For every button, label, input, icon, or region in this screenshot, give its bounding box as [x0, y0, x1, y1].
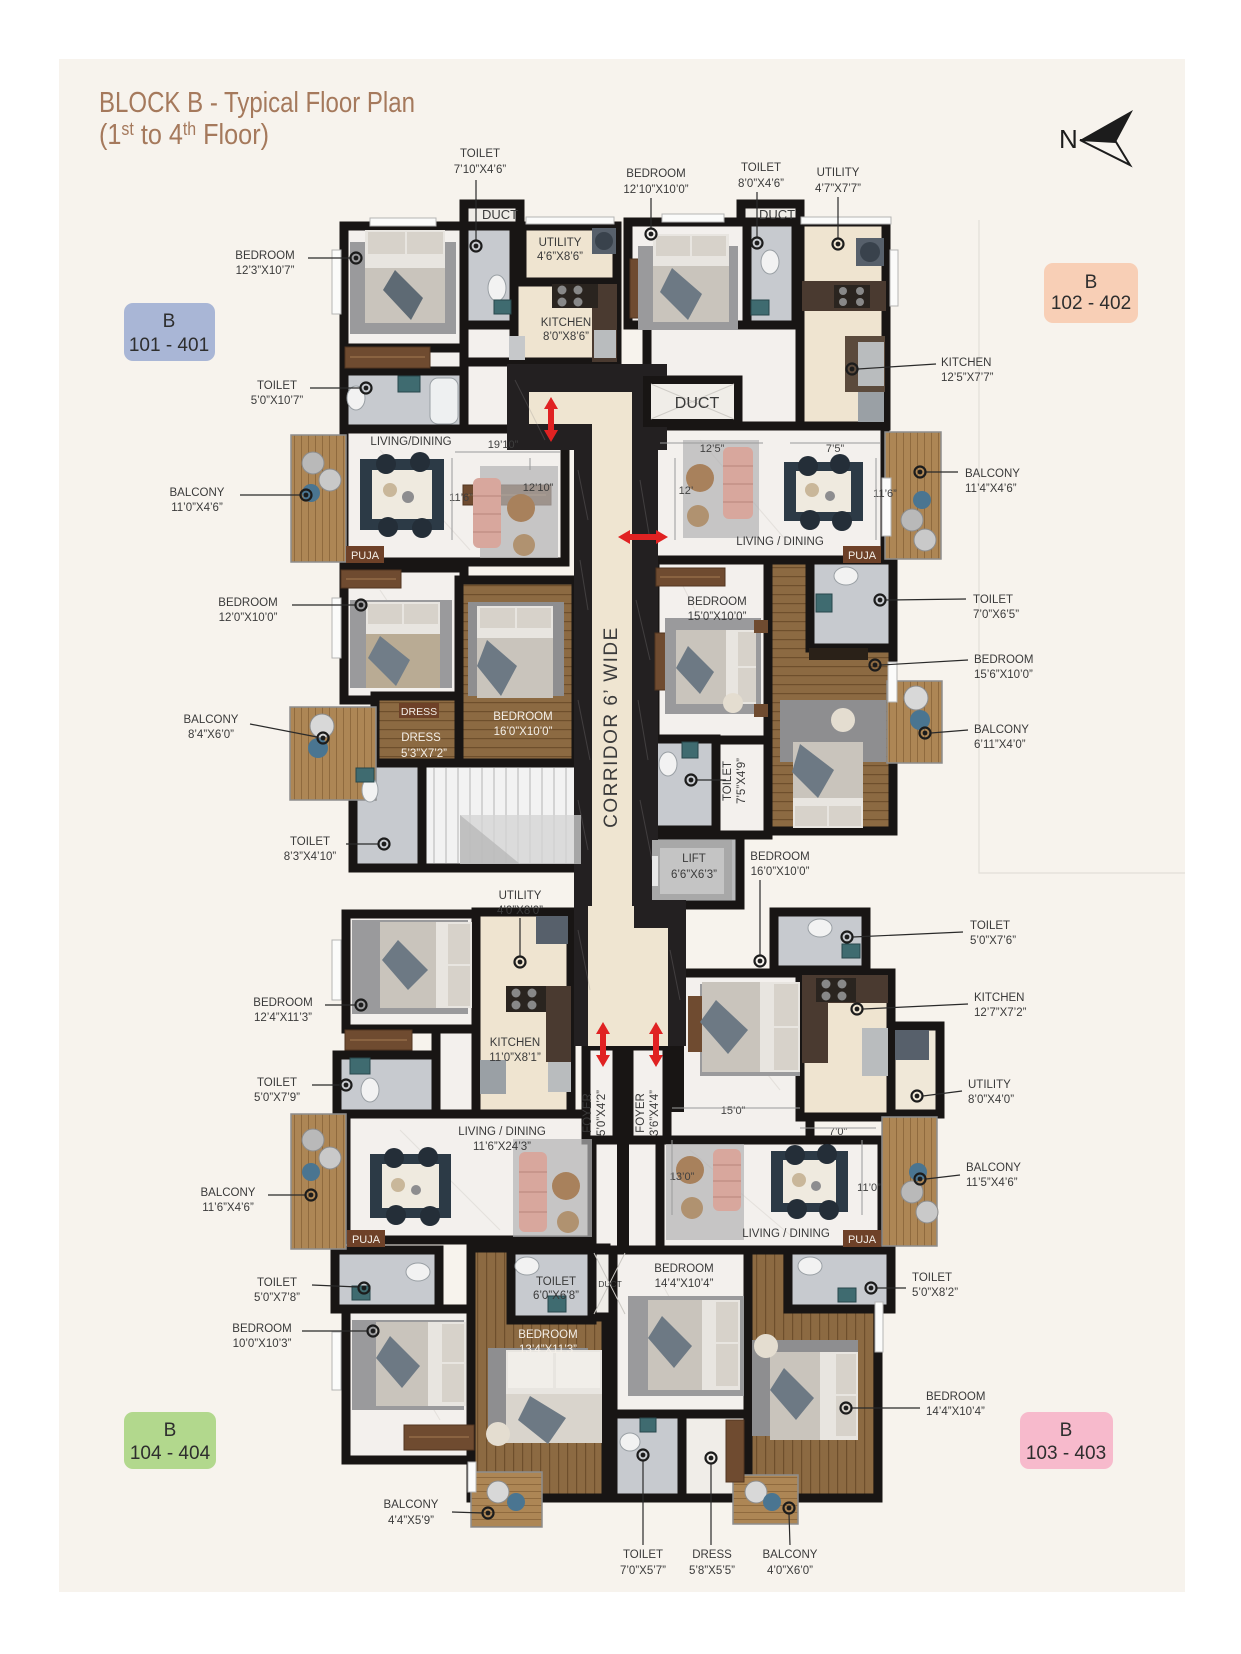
svg-text:FOYER: FOYER	[582, 1093, 594, 1133]
svg-text:104 - 404: 104 - 404	[130, 1443, 211, 1464]
svg-text:12’10”X10’0”: 12’10”X10’0”	[623, 184, 688, 196]
svg-text:BEDROOM: BEDROOM	[235, 250, 294, 262]
svg-text:KITCHEN: KITCHEN	[941, 357, 991, 369]
svg-text:BEDROOM: BEDROOM	[750, 851, 809, 863]
svg-text:B: B	[1085, 272, 1098, 293]
svg-text:(1st to 4th Floor): (1st to 4th Floor)	[99, 119, 269, 151]
svg-text:101 - 401: 101 - 401	[129, 335, 209, 356]
svg-text:KITCHEN: KITCHEN	[490, 1037, 540, 1049]
svg-text:19’10”: 19’10”	[488, 439, 519, 451]
svg-text:B: B	[1060, 1420, 1073, 1441]
svg-text:UTILITY: UTILITY	[817, 167, 860, 179]
svg-text:15’6”X10’0”: 15’6”X10’0”	[974, 669, 1033, 681]
svg-text:16’0”X10’0”: 16’0”X10’0”	[494, 726, 553, 738]
svg-text:TOILET: TOILET	[970, 920, 1010, 932]
svg-text:8’0”X4’0”: 8’0”X4’0”	[968, 1094, 1014, 1106]
svg-text:FOYER: FOYER	[635, 1093, 647, 1133]
svg-text:TOILET: TOILET	[257, 380, 297, 392]
svg-text:14’4”X10’4”: 14’4”X10’4”	[655, 1278, 714, 1290]
svg-text:12’10”: 12’10”	[523, 482, 554, 494]
svg-text:7’5”: 7’5”	[826, 443, 845, 455]
svg-text:TOILET: TOILET	[973, 594, 1013, 606]
svg-text:4’6”X8’6”: 4’6”X8’6”	[537, 251, 583, 263]
svg-text:11’5”X4’6”: 11’5”X4’6”	[966, 1177, 1018, 1189]
svg-text:4’0”X8’0”: 4’0”X8’0”	[497, 905, 543, 917]
svg-text:TOILET: TOILET	[912, 1272, 952, 1284]
svg-text:11’6”X24’3”: 11’6”X24’3”	[473, 1141, 531, 1153]
svg-text:TOILET: TOILET	[623, 1549, 663, 1561]
svg-text:BEDROOM: BEDROOM	[654, 1263, 713, 1275]
svg-text:11’0”: 11’0”	[857, 1182, 881, 1194]
svg-text:PUJA: PUJA	[848, 550, 877, 562]
svg-text:6’6”X6’3”: 6’6”X6’3”	[671, 869, 717, 881]
svg-text:DUCT: DUCT	[598, 1279, 622, 1289]
svg-text:4’7”X7’7”: 4’7”X7’7”	[815, 183, 861, 195]
svg-text:12’5”: 12’5”	[700, 443, 725, 455]
svg-text:12’: 12’	[679, 485, 694, 497]
svg-text:DUCT: DUCT	[675, 395, 720, 412]
svg-text:DUCT: DUCT	[759, 207, 795, 222]
svg-text:BALCONY: BALCONY	[966, 1162, 1021, 1174]
svg-text:13’4”X11’3”: 13’4”X11’3”	[519, 1344, 577, 1356]
svg-text:LIFT: LIFT	[682, 853, 706, 865]
svg-text:BEDROOM: BEDROOM	[218, 597, 277, 609]
svg-text:5’0”X4’2”: 5’0”X4’2”	[596, 1090, 608, 1136]
svg-text:CORRIDOR 6’ WIDE: CORRIDOR 6’ WIDE	[601, 626, 622, 828]
svg-text:7’0”X6’5”: 7’0”X6’5”	[973, 609, 1019, 621]
svg-text:12’3”X10’7”: 12’3”X10’7”	[236, 265, 295, 277]
svg-text:10’0”X10’3”: 10’0”X10’3”	[233, 1338, 292, 1350]
svg-text:7’0”X5’7”: 7’0”X5’7”	[620, 1565, 666, 1577]
svg-text:5’0”X7’6”: 5’0”X7’6”	[970, 935, 1016, 947]
svg-text:15’0”: 15’0”	[721, 1105, 746, 1117]
svg-text:11’4”X4’6”: 11’4”X4’6”	[965, 483, 1017, 495]
svg-text:7’5”X4’9”: 7’5”X4’9”	[736, 758, 748, 804]
svg-text:BALCONY: BALCONY	[965, 468, 1020, 480]
svg-text:TOILET: TOILET	[290, 836, 330, 848]
svg-text:LIVING/DINING: LIVING/DINING	[370, 436, 451, 448]
svg-text:BEDROOM: BEDROOM	[253, 997, 312, 1009]
svg-text:8’0”X8’6”: 8’0”X8’6”	[543, 331, 589, 343]
svg-text:BEDROOM: BEDROOM	[926, 1391, 985, 1403]
svg-text:BEDROOM: BEDROOM	[232, 1323, 291, 1335]
svg-text:PUJA: PUJA	[351, 550, 380, 562]
svg-text:B: B	[163, 311, 176, 332]
svg-text:UTILITY: UTILITY	[499, 890, 542, 902]
svg-text:TOILET: TOILET	[257, 1277, 297, 1289]
svg-text:11’0”X4’6”: 11’0”X4’6”	[171, 502, 223, 514]
svg-text:BALCONY: BALCONY	[974, 724, 1029, 736]
svg-text:DRESS: DRESS	[401, 706, 437, 718]
svg-text:BEDROOM: BEDROOM	[687, 596, 746, 608]
svg-text:14’4”X10’4”: 14’4”X10’4”	[926, 1406, 985, 1418]
svg-text:12’4”X11’3”: 12’4”X11’3”	[254, 1012, 312, 1024]
svg-text:TOILET: TOILET	[257, 1077, 297, 1089]
svg-text:UTILITY: UTILITY	[539, 237, 582, 249]
svg-text:13’0”: 13’0”	[670, 1171, 695, 1183]
svg-text:TOILET: TOILET	[460, 148, 500, 160]
svg-text:TOILET: TOILET	[741, 162, 781, 174]
svg-text:BALCONY: BALCONY	[184, 714, 239, 726]
svg-text:6’11”X4’0”: 6’11”X4’0”	[974, 739, 1026, 751]
svg-text:5’3”X7’2”: 5’3”X7’2”	[401, 748, 447, 760]
svg-text:BALCONY: BALCONY	[201, 1187, 256, 1199]
svg-text:5’8”X5’5”: 5’8”X5’5”	[689, 1565, 735, 1577]
svg-text:15’0”X10’0”: 15’0”X10’0”	[688, 611, 747, 623]
svg-text:6’0”X6’8”: 6’0”X6’8”	[533, 1290, 579, 1302]
svg-text:11’6”X4’6”: 11’6”X4’6”	[202, 1202, 254, 1214]
svg-text:5’0”X7’8”: 5’0”X7’8”	[254, 1292, 300, 1304]
svg-text:BALCONY: BALCONY	[763, 1549, 818, 1561]
svg-text:5’0”X7’9”: 5’0”X7’9”	[254, 1092, 300, 1104]
svg-text:12’7”X7’2”: 12’7”X7’2”	[974, 1007, 1027, 1019]
svg-text:DRESS: DRESS	[401, 732, 441, 744]
svg-text:8’0”X4’6”: 8’0”X4’6”	[738, 178, 784, 190]
svg-text:11’6”: 11’6”	[449, 492, 473, 504]
svg-text:7’10”X4’6”: 7’10”X4’6”	[454, 164, 507, 176]
svg-text:BALCONY: BALCONY	[170, 487, 225, 499]
svg-text:PUJA: PUJA	[848, 1234, 877, 1246]
svg-text:KITCHEN: KITCHEN	[541, 317, 591, 329]
svg-text:DUCT: DUCT	[482, 207, 518, 222]
svg-text:BALCONY: BALCONY	[384, 1499, 439, 1511]
svg-text:12’0”X10’0”: 12’0”X10’0”	[219, 612, 278, 624]
svg-text:BEDROOM: BEDROOM	[626, 168, 685, 180]
svg-text:UTILITY: UTILITY	[968, 1079, 1011, 1091]
svg-text:3’6”X4’4”: 3’6”X4’4”	[649, 1090, 661, 1136]
svg-text:4’4”X5’9”: 4’4”X5’9”	[388, 1515, 434, 1527]
svg-text:16’0”X10’0”: 16’0”X10’0”	[751, 866, 810, 878]
svg-text:11’6”: 11’6”	[873, 488, 897, 500]
svg-text:KITCHEN: KITCHEN	[974, 992, 1024, 1004]
svg-text:5’0”X8’2”: 5’0”X8’2”	[912, 1287, 958, 1299]
svg-text:BEDROOM: BEDROOM	[974, 654, 1033, 666]
svg-text:8’3”X4’10”: 8’3”X4’10”	[284, 851, 337, 863]
svg-text:4’0”X6’0”: 4’0”X6’0”	[767, 1565, 813, 1577]
svg-text:DRESS: DRESS	[692, 1549, 732, 1561]
svg-text:LIVING / DINING: LIVING / DINING	[736, 536, 824, 548]
svg-text:N: N	[1059, 124, 1078, 154]
svg-text:BLOCK B - Typical Floor Plan: BLOCK B - Typical Floor Plan	[99, 87, 415, 119]
svg-text:102 - 402: 102 - 402	[1051, 293, 1131, 314]
svg-text:LIVING / DINING: LIVING / DINING	[742, 1228, 830, 1240]
svg-text:B: B	[164, 1420, 177, 1441]
svg-text:LIVING / DINING: LIVING / DINING	[458, 1126, 546, 1138]
svg-text:BEDROOM: BEDROOM	[518, 1329, 577, 1341]
svg-text:103 - 403: 103 - 403	[1026, 1443, 1106, 1464]
svg-text:TOILET: TOILET	[536, 1276, 576, 1288]
svg-text:TOILET: TOILET	[722, 761, 734, 801]
svg-text:11’0”X8’1”: 11’0”X8’1”	[489, 1052, 541, 1064]
svg-text:BEDROOM: BEDROOM	[493, 711, 552, 723]
svg-text:12’5”X7’7”: 12’5”X7’7”	[941, 372, 994, 384]
svg-text:5’0”X10’7”: 5’0”X10’7”	[251, 395, 304, 407]
svg-text:8’4”X6’0”: 8’4”X6’0”	[188, 729, 234, 741]
svg-text:PUJA: PUJA	[352, 1234, 381, 1246]
